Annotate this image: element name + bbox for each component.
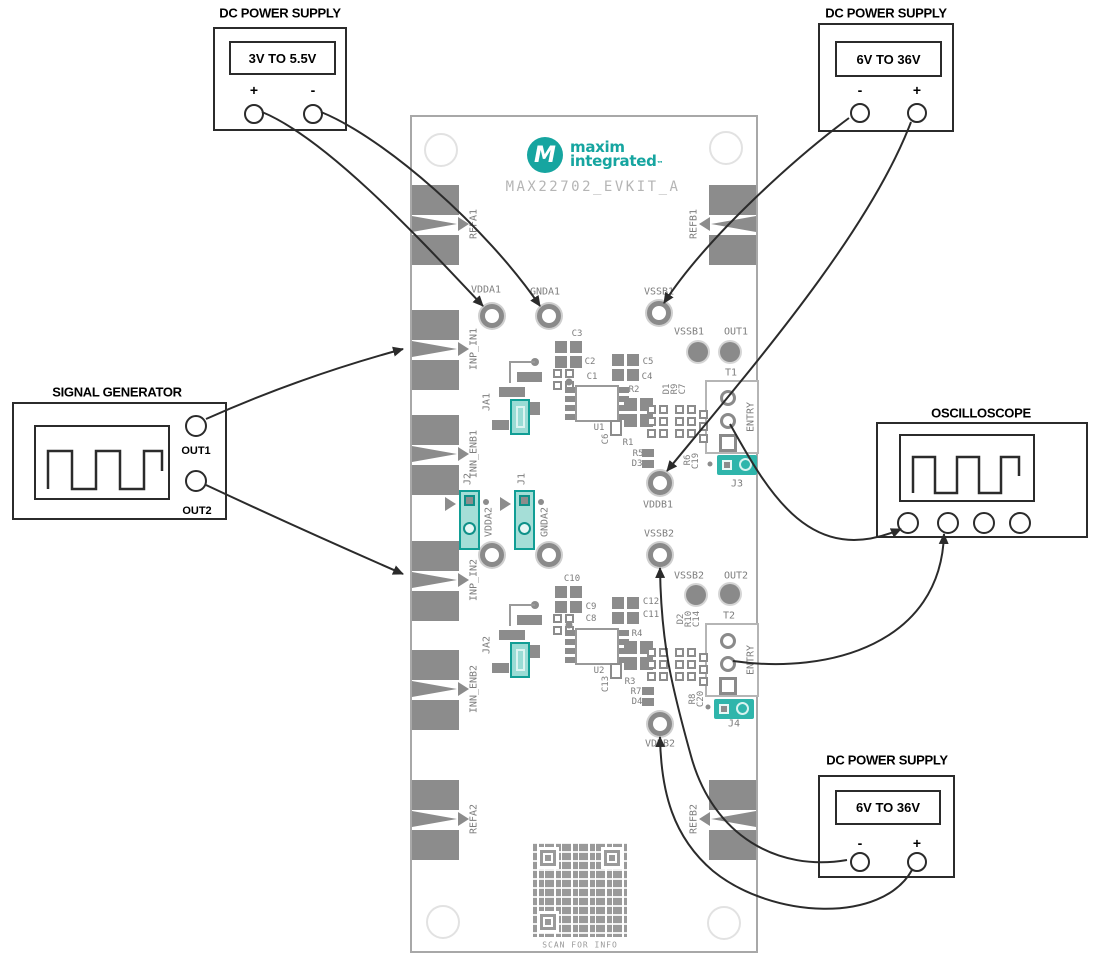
jumper-label-j3: J3: [731, 479, 743, 490]
pad: [570, 586, 582, 598]
oscilloscope-title: OSCILLOSCOPE: [931, 406, 1031, 421]
edge-label-inn-enb1: INN_ENB1: [469, 430, 480, 478]
component-label-c5: C5: [643, 357, 654, 367]
edge-trace: [711, 811, 756, 827]
qr-finder: [537, 847, 559, 869]
edge-pad: [412, 700, 459, 730]
pad: [699, 665, 708, 674]
pad: [553, 626, 562, 635]
pad-cluster: [555, 341, 582, 368]
oscilloscope-input4-terminal: [1009, 512, 1031, 534]
via-dot: [483, 499, 489, 505]
pad: [687, 417, 696, 426]
pad: [570, 356, 582, 368]
pad: [555, 601, 567, 613]
psu-top-right-minus-label: -: [858, 82, 863, 98]
edge-label-refb2: REFB2: [689, 804, 700, 834]
signal-generator: OUT1 OUT2: [12, 402, 227, 520]
component-label-c9: C9: [586, 602, 597, 612]
edge-trace: [412, 572, 457, 588]
arrow-marker-icon: [699, 812, 710, 826]
edge-pad: [412, 360, 459, 390]
connector-label-t1: T1: [725, 368, 737, 379]
testpoint-vddb1: [648, 471, 672, 495]
qr-finder: [601, 847, 623, 869]
component-label-c11: C11: [643, 610, 659, 620]
pad: [499, 387, 525, 397]
pad: [565, 387, 575, 393]
jumper-label-j1: J1: [517, 473, 528, 485]
board-silkscreen-title: MAX22702_EVKIT_A: [506, 179, 681, 195]
pad: [612, 612, 624, 624]
pad: [565, 657, 575, 663]
component-label-u1: U1: [594, 423, 605, 433]
jumper-ja2: [510, 642, 530, 678]
pad: [610, 663, 622, 679]
via-out1: [720, 342, 740, 362]
pad: [610, 420, 622, 436]
arrow-marker-icon: [699, 217, 710, 231]
pad-cluster: [612, 354, 639, 381]
component-label-c20: C20: [696, 691, 706, 707]
testpoint-vddb2: [648, 712, 672, 736]
psu-top-right-plus-terminal: [907, 103, 927, 123]
pad: [565, 648, 575, 654]
pad: [612, 354, 624, 366]
edge-label-inp-in2: INP_IN2: [469, 559, 480, 601]
pad: [530, 402, 540, 415]
pad: [553, 614, 562, 623]
t2-pin: [720, 656, 736, 672]
edge-pad: [412, 541, 459, 571]
component-label-d3: D3: [632, 459, 643, 469]
pad: [612, 597, 624, 609]
pad: [647, 672, 656, 681]
connector-t2: ENTRY: [705, 623, 759, 697]
t2-pin: [719, 677, 737, 695]
pad: [687, 648, 696, 657]
pad-cluster: [647, 405, 668, 438]
jumper-j2: [459, 490, 480, 550]
psu-bottom-right-minus-terminal: [850, 852, 870, 872]
component-label-c12: C12: [643, 597, 659, 607]
pad: [555, 586, 567, 598]
pad: [647, 429, 656, 438]
arrow-marker-icon: [458, 447, 469, 461]
connector-label-t2: T2: [723, 611, 735, 622]
pad: [642, 687, 654, 695]
pad: [517, 372, 542, 382]
pad: [699, 434, 708, 443]
t1-pin: [720, 390, 736, 406]
testpoint-label-vdda2: VDDA2: [484, 507, 495, 537]
trace: [509, 604, 535, 606]
via-vssb1: [688, 342, 708, 362]
testpoint-label-vdda1: VDDA1: [471, 285, 501, 296]
pad: [553, 381, 562, 390]
component-label-c4: C4: [642, 372, 653, 382]
t2-pin: [720, 633, 736, 649]
signal-generator-display: [34, 425, 170, 500]
testpoint-gnda1: [537, 304, 561, 328]
pad: [624, 398, 637, 411]
jumper-j4: [714, 699, 754, 719]
jumper-j3: [717, 455, 757, 475]
pad: [565, 396, 575, 402]
mounting-hole: [709, 131, 743, 165]
arrow-marker-icon: [445, 497, 456, 511]
edge-pad: [709, 830, 756, 860]
pad: [627, 354, 639, 366]
pad: [627, 369, 639, 381]
pad: [642, 460, 654, 468]
component-label-u2: U2: [594, 666, 605, 676]
via-label-out2: OUT2: [724, 571, 748, 582]
testpoint-label-gnda2: GNDA2: [540, 507, 551, 537]
edge-pad: [709, 780, 756, 810]
component-label-d4: D4: [632, 697, 643, 707]
component-label-c3: C3: [572, 329, 583, 339]
j4-pin: [736, 702, 749, 715]
mounting-hole: [707, 906, 741, 940]
via-dot: [706, 705, 711, 710]
pad: [565, 639, 575, 645]
pad: [570, 341, 582, 353]
pad: [565, 414, 575, 420]
via-out2: [720, 584, 740, 604]
via-label-vssb1: VSSB1: [674, 327, 704, 338]
pad: [570, 601, 582, 613]
signal-generator-title: SIGNAL GENERATOR: [52, 385, 182, 400]
edge-pad: [412, 185, 459, 215]
pad: [699, 677, 708, 686]
pad: [659, 405, 668, 414]
t1-pin: [720, 413, 736, 429]
pad: [675, 672, 684, 681]
psu-top-right-title: DC POWER SUPPLY: [825, 6, 946, 21]
wire-siggen-out1-to-inp-in1: [206, 349, 403, 419]
pad: [675, 648, 684, 657]
brand-line2: integrated: [570, 152, 657, 170]
pad: [492, 420, 509, 430]
pad: [555, 356, 567, 368]
signal-generator-out2-terminal: [185, 470, 207, 492]
trace: [509, 361, 511, 383]
testpoint-gnda2: [537, 543, 561, 567]
testpoint-label-vddb1: VDDB1: [643, 500, 673, 511]
edge-pad: [412, 780, 459, 810]
component-label-c1: C1: [587, 372, 598, 382]
maxim-logo-icon: M: [527, 137, 563, 173]
pad-cluster: [675, 648, 696, 681]
j2-pin: [463, 522, 476, 535]
component-label-c7: C7: [678, 384, 688, 395]
pad: [659, 672, 668, 681]
component-label-c2: C2: [585, 357, 596, 367]
arrow-marker-icon: [458, 217, 469, 231]
pad: [619, 387, 629, 393]
edge-pad: [412, 415, 459, 445]
oscilloscope-input2-terminal: [937, 512, 959, 534]
pad: [565, 630, 575, 636]
jumper-label-ja2: JA2: [482, 636, 493, 654]
jumper-label-j4: J4: [728, 719, 740, 730]
pad: [642, 449, 654, 457]
t1-entry-label: ENTRY: [746, 402, 757, 432]
j4-pin: [719, 704, 729, 714]
ic-u1-outline: [575, 385, 619, 422]
component-label-r1: R1: [623, 438, 634, 448]
edge-pad: [412, 591, 459, 621]
edge-pad: [412, 830, 459, 860]
oscilloscope: [876, 422, 1088, 538]
pad: [675, 429, 684, 438]
pad: [647, 405, 656, 414]
qr-caption: SCAN FOR INFO: [542, 941, 618, 950]
pad: [555, 341, 567, 353]
edge-pad: [412, 235, 459, 265]
psu-top-left-minus-terminal: [303, 104, 323, 124]
pad: [624, 657, 637, 670]
pad: [699, 422, 708, 431]
mounting-hole: [424, 133, 458, 167]
edge-label-inn-enb2: INN_ENB2: [469, 665, 480, 713]
pad: [675, 660, 684, 669]
edge-pad: [709, 235, 756, 265]
psu-bottom-right: 6V TO 36V - +: [818, 775, 955, 878]
psu-top-left-plus-terminal: [244, 104, 264, 124]
pad: [642, 698, 654, 706]
jumper-label-ja1: JA1: [482, 393, 493, 411]
testpoint-vdda1: [480, 304, 504, 328]
jumper-j1: [514, 490, 535, 550]
ic-u2-outline: [575, 628, 619, 665]
trace: [509, 604, 511, 626]
pad: [659, 648, 668, 657]
component-label-c10: C10: [564, 574, 580, 584]
pad: [553, 369, 562, 378]
pad: [647, 648, 656, 657]
pad: [699, 410, 708, 419]
component-label-c19: C19: [691, 453, 701, 469]
testpoint-vssb2: [648, 543, 672, 567]
oscilloscope-display: [899, 434, 1035, 502]
pad: [492, 663, 509, 673]
pad-cluster: [699, 653, 708, 686]
pad-cluster: [612, 597, 639, 624]
pad: [687, 405, 696, 414]
testpoint-vdda2: [480, 543, 504, 567]
j3-pin: [722, 460, 732, 470]
psu-top-right-range: 6V TO 36V: [835, 41, 942, 77]
testpoint-label-vddb2: VDDB2: [645, 739, 675, 750]
oscilloscope-input1-terminal: [897, 512, 919, 534]
arrow-marker-icon: [458, 682, 469, 696]
pad-cluster: [555, 586, 582, 613]
jumper-label-j2: J2: [463, 473, 474, 485]
edge-trace: [412, 216, 457, 232]
pad: [675, 417, 684, 426]
testpoint-label-vssb2: VSSB2: [644, 529, 674, 540]
pad: [612, 369, 624, 381]
edge-trace: [412, 681, 457, 697]
edge-trace: [711, 216, 756, 232]
signal-generator-out2-label: OUT2: [182, 505, 211, 517]
psu-top-right-plus-label: +: [913, 82, 921, 98]
pad: [624, 641, 637, 654]
pad-cluster: [647, 648, 668, 681]
pad: [687, 672, 696, 681]
pin1-dot: [566, 379, 573, 386]
edge-pad: [412, 310, 459, 340]
pad: [624, 414, 637, 427]
trademark: ™: [657, 160, 664, 168]
edge-trace: [412, 446, 457, 462]
pad: [517, 615, 542, 625]
wiring-diagram: DC POWER SUPPLY 3V TO 5.5V + - DC POWER …: [0, 0, 1100, 965]
via-dot: [538, 499, 544, 505]
via-vssb2: [686, 585, 706, 605]
j1-pin: [518, 522, 531, 535]
psu-top-left: 3V TO 5.5V + -: [213, 27, 347, 131]
edge-label-refa1: REFA1: [469, 209, 480, 239]
wire-t2-entry-to-scope2: [733, 534, 944, 664]
trace: [509, 361, 535, 363]
signal-generator-out1-terminal: [185, 415, 207, 437]
pin1-dot: [566, 622, 573, 629]
edge-pad: [412, 650, 459, 680]
mounting-hole: [426, 905, 460, 939]
via-dot: [708, 462, 713, 467]
oscilloscope-input3-terminal: [973, 512, 995, 534]
edge-trace: [412, 341, 457, 357]
pad: [627, 612, 639, 624]
psu-top-left-title: DC POWER SUPPLY: [219, 6, 340, 21]
qr-code: [533, 843, 627, 937]
pad: [699, 653, 708, 662]
j2-pin: [464, 495, 475, 506]
edge-pad: [709, 185, 756, 215]
connector-t1: ENTRY: [705, 380, 759, 454]
component-label-c14: C14: [692, 611, 702, 627]
pad: [687, 660, 696, 669]
edge-pad: [412, 465, 459, 495]
psu-bottom-right-minus-label: -: [858, 835, 863, 851]
arrow-marker-icon: [500, 497, 511, 511]
pad: [499, 630, 525, 640]
pad: [565, 405, 575, 411]
arrow-marker-icon: [458, 812, 469, 826]
psu-top-left-plus-label: +: [250, 82, 258, 98]
testpoint-label-gnda1: GNDA1: [530, 287, 560, 298]
psu-top-right-minus-terminal: [850, 103, 870, 123]
j1-pin: [519, 495, 530, 506]
pad: [675, 405, 684, 414]
pad: [647, 660, 656, 669]
edge-label-refa2: REFA2: [469, 804, 480, 834]
qr-finder: [537, 911, 559, 933]
j3-pin: [739, 458, 752, 471]
psu-top-right: 6V TO 36V - +: [818, 23, 954, 132]
pad: [565, 369, 574, 378]
via-label-out1: OUT1: [724, 327, 748, 338]
pad: [687, 429, 696, 438]
square-wave-icon: [36, 427, 172, 502]
pad-cluster: [675, 405, 696, 438]
component-label-r4: R4: [632, 629, 643, 639]
psu-bottom-right-title: DC POWER SUPPLY: [826, 753, 947, 768]
psu-bottom-right-plus-label: +: [913, 835, 921, 851]
pad: [530, 645, 540, 658]
pad: [619, 630, 629, 636]
edge-trace: [412, 811, 457, 827]
square-wave-icon: [901, 436, 1037, 504]
component-label-r2: R2: [629, 385, 640, 395]
jumper-ja1: [510, 399, 530, 435]
pad: [659, 429, 668, 438]
signal-generator-out1-label: OUT1: [181, 445, 210, 457]
t1-pin: [719, 434, 737, 452]
psu-bottom-right-plus-terminal: [907, 852, 927, 872]
pad: [647, 417, 656, 426]
via-label-vssb2: VSSB2: [674, 571, 704, 582]
pad: [659, 417, 668, 426]
wire-siggen-out2-to-inp-in2: [206, 485, 403, 574]
maxim-logo-text: maxim integrated™: [570, 140, 663, 171]
pad: [659, 660, 668, 669]
arrow-marker-icon: [458, 573, 469, 587]
pad-cluster: [699, 410, 708, 443]
testpoint-vssb1: [647, 301, 671, 325]
edge-label-inp-in1: INP_IN1: [469, 328, 480, 370]
arrow-marker-icon: [458, 342, 469, 356]
component-label-r7: R7: [631, 687, 642, 697]
t2-entry-label: ENTRY: [746, 645, 757, 675]
pad: [627, 597, 639, 609]
edge-label-refb1: REFB1: [689, 209, 700, 239]
psu-top-left-range: 3V TO 5.5V: [229, 41, 336, 75]
psu-top-left-minus-label: -: [311, 82, 316, 98]
testpoint-label-vssb1: VSSB1: [644, 287, 674, 298]
evkit-board: M maxim integrated™ MAX22702_EVKIT_A REF…: [410, 115, 758, 953]
psu-bottom-right-range: 6V TO 36V: [835, 790, 941, 825]
component-label-c8: C8: [586, 614, 597, 624]
component-label-r3: R3: [625, 677, 636, 687]
